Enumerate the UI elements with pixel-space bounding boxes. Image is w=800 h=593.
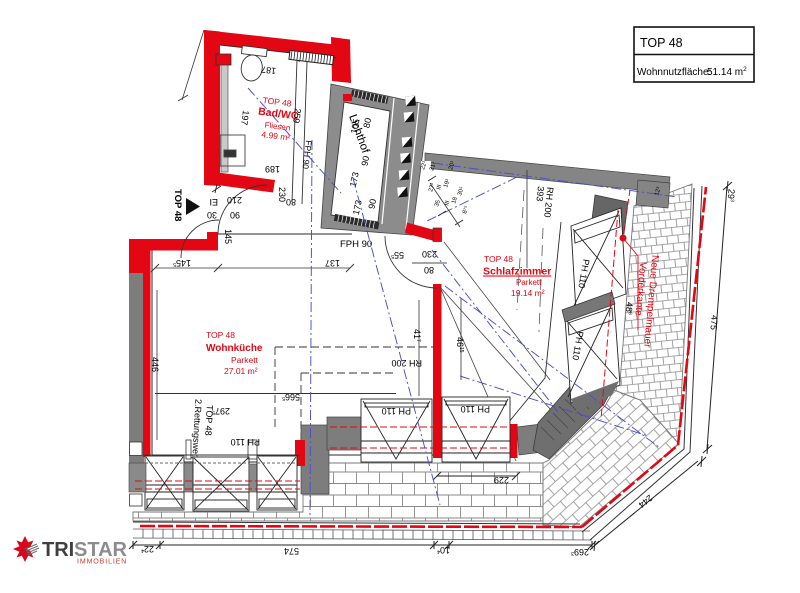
svg-text:51.14 m2: 51.14 m2 [707, 66, 747, 78]
svg-text:RH 200: RH 200 [391, 358, 422, 368]
svg-text:137: 137 [325, 258, 340, 268]
svg-text:IMMOBILIEN: IMMOBILIEN [77, 559, 127, 566]
svg-text:230: 230 [277, 187, 287, 202]
svg-text:197: 197 [239, 110, 251, 126]
svg-text:80: 80 [286, 197, 296, 207]
svg-text:90: 90 [366, 198, 378, 210]
svg-text:FPH 90: FPH 90 [340, 239, 372, 250]
svg-text:Parkett: Parkett [516, 278, 542, 287]
svg-text:Parkett: Parkett [231, 355, 259, 365]
svg-text:446: 446 [150, 357, 160, 372]
svg-text:TOP 48: TOP 48 [203, 405, 215, 436]
svg-text:475: 475 [709, 315, 720, 331]
svg-text:19.14 m²: 19.14 m² [511, 288, 545, 298]
svg-text:TOP 48: TOP 48 [206, 330, 235, 340]
svg-text:TRI: TRI [42, 539, 74, 561]
svg-text:Wohnnutzfläche:: Wohnnutzfläche: [637, 67, 711, 78]
svg-text:80: 80 [424, 265, 434, 275]
svg-text:574: 574 [284, 546, 299, 556]
svg-text:90: 90 [230, 210, 240, 220]
svg-text:EI: EI [209, 197, 218, 207]
svg-text:210: 210 [227, 195, 242, 205]
svg-text:189: 189 [265, 164, 280, 174]
svg-text:393: 393 [534, 186, 546, 202]
svg-text:259: 259 [291, 108, 303, 124]
svg-text:PH 110: PH 110 [382, 406, 411, 416]
svg-text:PH 110: PH 110 [461, 404, 490, 414]
svg-text:145: 145 [223, 229, 233, 244]
svg-text:229: 229 [494, 475, 509, 485]
svg-text:Wohnküche: Wohnküche [206, 343, 263, 354]
svg-text:TOP 48: TOP 48 [484, 254, 513, 264]
svg-text:27.01 m²: 27.01 m² [224, 366, 258, 376]
svg-text:187: 187 [261, 64, 277, 76]
svg-text:PH 110: PH 110 [231, 437, 260, 447]
svg-text:TOP 48: TOP 48 [172, 189, 183, 221]
svg-text:TOP 48: TOP 48 [640, 36, 683, 50]
svg-text:30: 30 [207, 210, 217, 220]
svg-text:90: 90 [359, 155, 371, 167]
